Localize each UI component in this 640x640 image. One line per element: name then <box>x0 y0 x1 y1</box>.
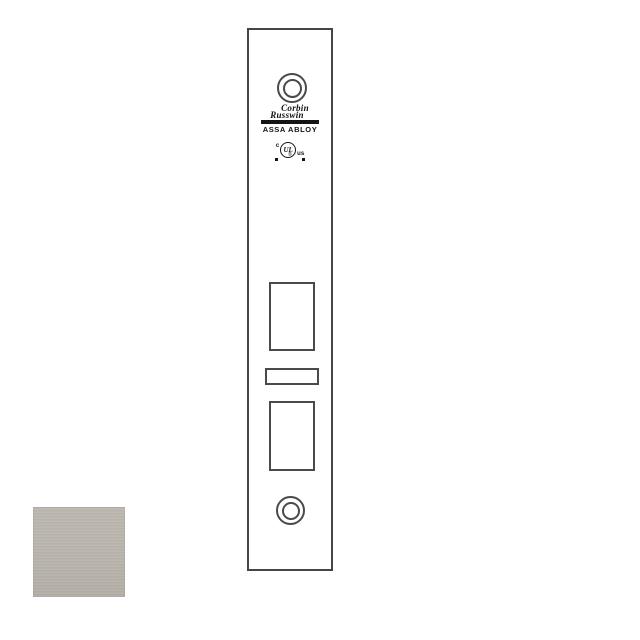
brand-name-line2: Russwin <box>249 111 331 119</box>
faceplate-outline: Corbin Russwin ASSA ABLOY c UL us ® <box>247 28 333 571</box>
ul-registered-symbol: ® <box>288 153 292 161</box>
product-image: Corbin Russwin ASSA ABLOY c UL us ® <box>0 0 640 640</box>
top-screw-hole-icon <box>277 73 307 103</box>
latch-cutout <box>269 282 315 351</box>
top-screw-hole-inner-ring <box>283 79 302 98</box>
ul-mark-prefix: c <box>276 143 279 149</box>
ul-mark-feet: ® <box>249 158 331 161</box>
ul-certification-mark: c UL us ® <box>249 142 331 161</box>
finish-swatch <box>33 507 125 597</box>
auxiliary-slot-cutout <box>265 368 319 385</box>
brand-underline-bar <box>261 120 319 124</box>
bottom-screw-hole-inner-ring <box>282 502 300 520</box>
brand-engraving: Corbin Russwin ASSA ABLOY <box>249 104 331 134</box>
ul-mark-foot-right <box>302 158 305 161</box>
bottom-screw-hole-icon <box>276 496 305 525</box>
brand-group-name: ASSA ABLOY <box>249 126 331 134</box>
ul-mark-suffix: us <box>297 151 304 157</box>
ul-mark-foot-left <box>275 158 278 161</box>
deadbolt-cutout <box>269 401 315 471</box>
